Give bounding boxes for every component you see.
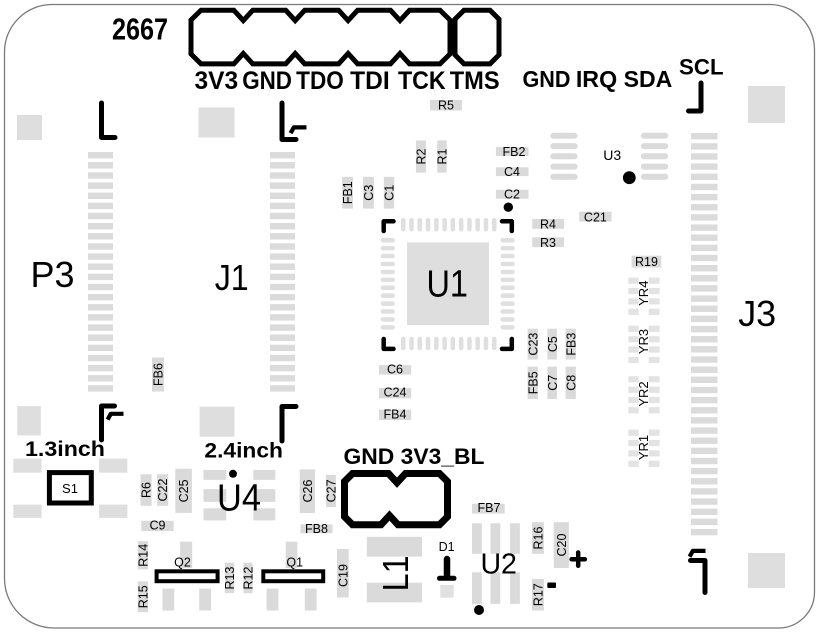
svg-text:C23: C23 [526, 333, 540, 356]
svg-text:SCL: SCL [679, 55, 724, 80]
svg-text:R13: R13 [223, 566, 237, 589]
svg-text:R4: R4 [540, 218, 556, 232]
svg-text:C9: C9 [150, 519, 166, 533]
svg-text:FB4: FB4 [384, 407, 407, 421]
svg-text:U2: U2 [480, 548, 517, 580]
svg-text:TCK: TCK [398, 67, 446, 95]
svg-text:L1: L1 [375, 555, 416, 591]
svg-text:C1: C1 [383, 185, 397, 201]
svg-text:C21: C21 [584, 210, 607, 224]
svg-text:FB1: FB1 [341, 181, 355, 204]
svg-text:FB3: FB3 [564, 333, 578, 356]
svg-text:FB5: FB5 [526, 371, 540, 394]
svg-text:R3: R3 [540, 236, 556, 250]
svg-text:C2: C2 [504, 188, 520, 202]
svg-text:YR2: YR2 [636, 381, 651, 406]
svg-text:R19: R19 [635, 255, 658, 269]
svg-text:C6: C6 [387, 362, 403, 376]
svg-text:C8: C8 [564, 375, 578, 391]
svg-text:YR1: YR1 [636, 435, 651, 460]
svg-text:R16: R16 [531, 526, 545, 549]
svg-text:P3: P3 [31, 254, 75, 295]
svg-text:C25: C25 [177, 479, 191, 502]
svg-text:R12: R12 [242, 566, 256, 589]
svg-text:C4: C4 [504, 165, 520, 179]
svg-text:R1: R1 [436, 148, 450, 164]
svg-text:FB2: FB2 [503, 145, 526, 159]
svg-text:TDI: TDI [350, 67, 390, 95]
svg-text:YR3: YR3 [636, 329, 651, 354]
svg-text:S1: S1 [62, 482, 78, 496]
svg-text:3V3: 3V3 [195, 67, 239, 95]
svg-text:C7: C7 [546, 375, 560, 391]
svg-text:U4: U4 [217, 478, 261, 520]
svg-text:C22: C22 [156, 478, 170, 501]
svg-text:C5: C5 [546, 336, 560, 352]
svg-text:R2: R2 [414, 148, 428, 164]
svg-text:U1: U1 [426, 264, 468, 306]
svg-text:Q2: Q2 [174, 556, 191, 570]
svg-text:GND: GND [242, 67, 292, 95]
svg-text:FB7: FB7 [478, 501, 501, 515]
svg-text:C26: C26 [301, 479, 315, 502]
svg-text:R14: R14 [137, 544, 151, 567]
svg-text:FB6: FB6 [152, 363, 166, 386]
svg-text:GND: GND [523, 66, 571, 92]
svg-text:D1: D1 [439, 540, 455, 554]
svg-text:J3: J3 [738, 293, 776, 334]
svg-text:C3: C3 [362, 185, 376, 201]
svg-text:2.4inch: 2.4inch [204, 438, 283, 462]
svg-text:R17: R17 [531, 583, 545, 606]
svg-text:Q1: Q1 [286, 556, 303, 570]
svg-text:C24: C24 [384, 386, 407, 400]
svg-text:GND 3V3_BL: GND 3V3_BL [344, 444, 485, 469]
svg-text:FB8: FB8 [305, 522, 328, 536]
svg-text:C20: C20 [555, 533, 569, 556]
svg-text:SDA: SDA [624, 66, 673, 92]
svg-text:U3: U3 [603, 147, 621, 163]
svg-text:R6: R6 [140, 482, 154, 498]
svg-text:TDO: TDO [296, 67, 344, 95]
svg-text:IRQ: IRQ [576, 66, 617, 92]
svg-text:R15: R15 [137, 585, 151, 608]
svg-text:1.3inch: 1.3inch [25, 437, 105, 461]
svg-text:C27: C27 [324, 479, 338, 502]
svg-text:C19: C19 [336, 564, 350, 587]
svg-text:R5: R5 [438, 99, 454, 113]
svg-text:2667: 2667 [112, 12, 168, 47]
svg-text:TMS: TMS [450, 67, 500, 95]
svg-text:J1: J1 [215, 257, 249, 298]
svg-text:YR4: YR4 [636, 281, 651, 306]
